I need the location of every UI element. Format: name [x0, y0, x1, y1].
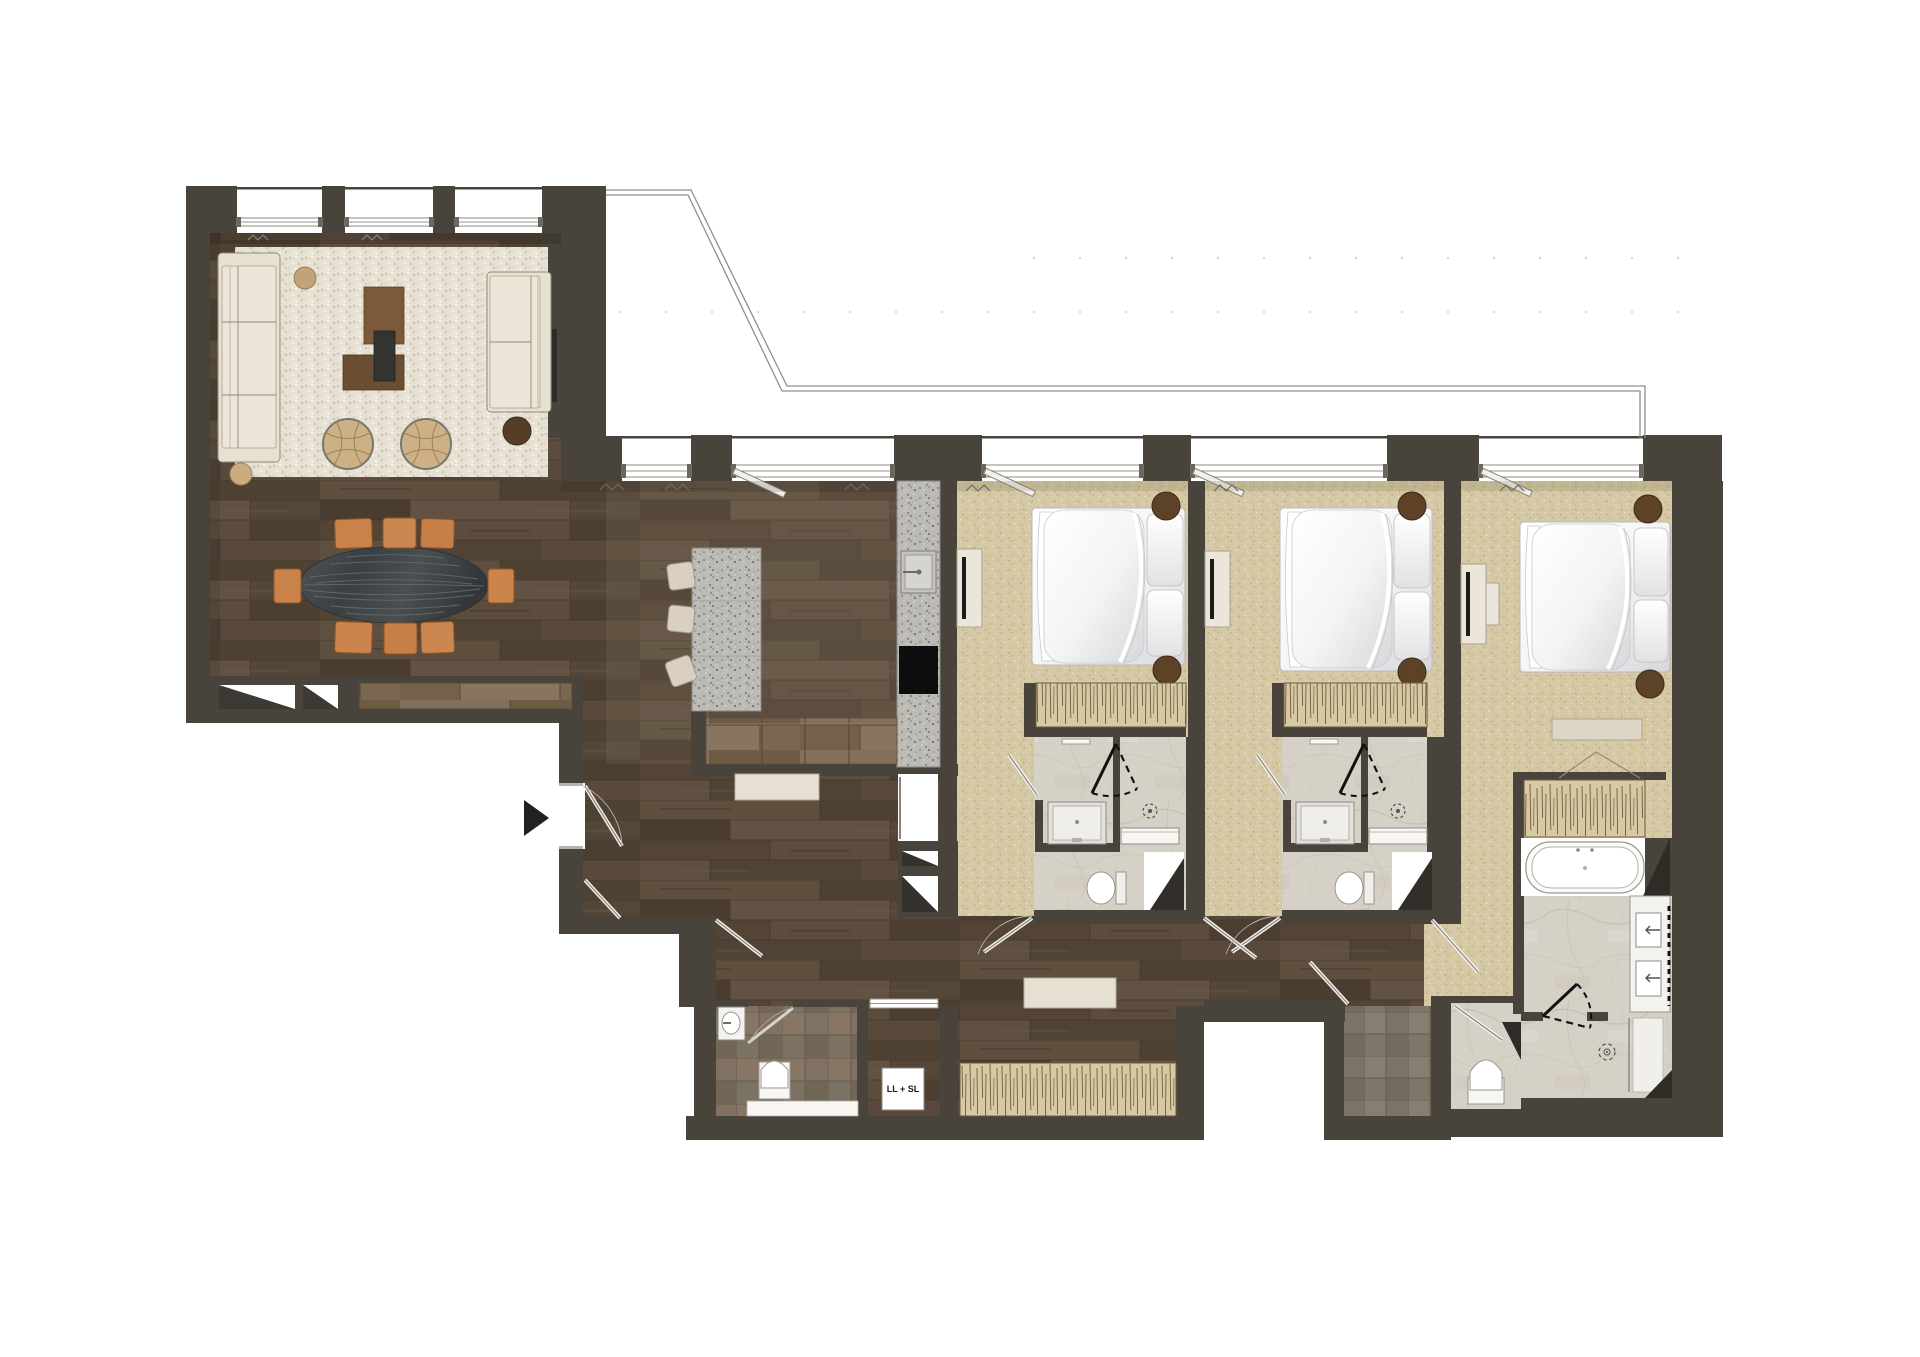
- svg-text:LL + SL: LL + SL: [887, 1084, 920, 1094]
